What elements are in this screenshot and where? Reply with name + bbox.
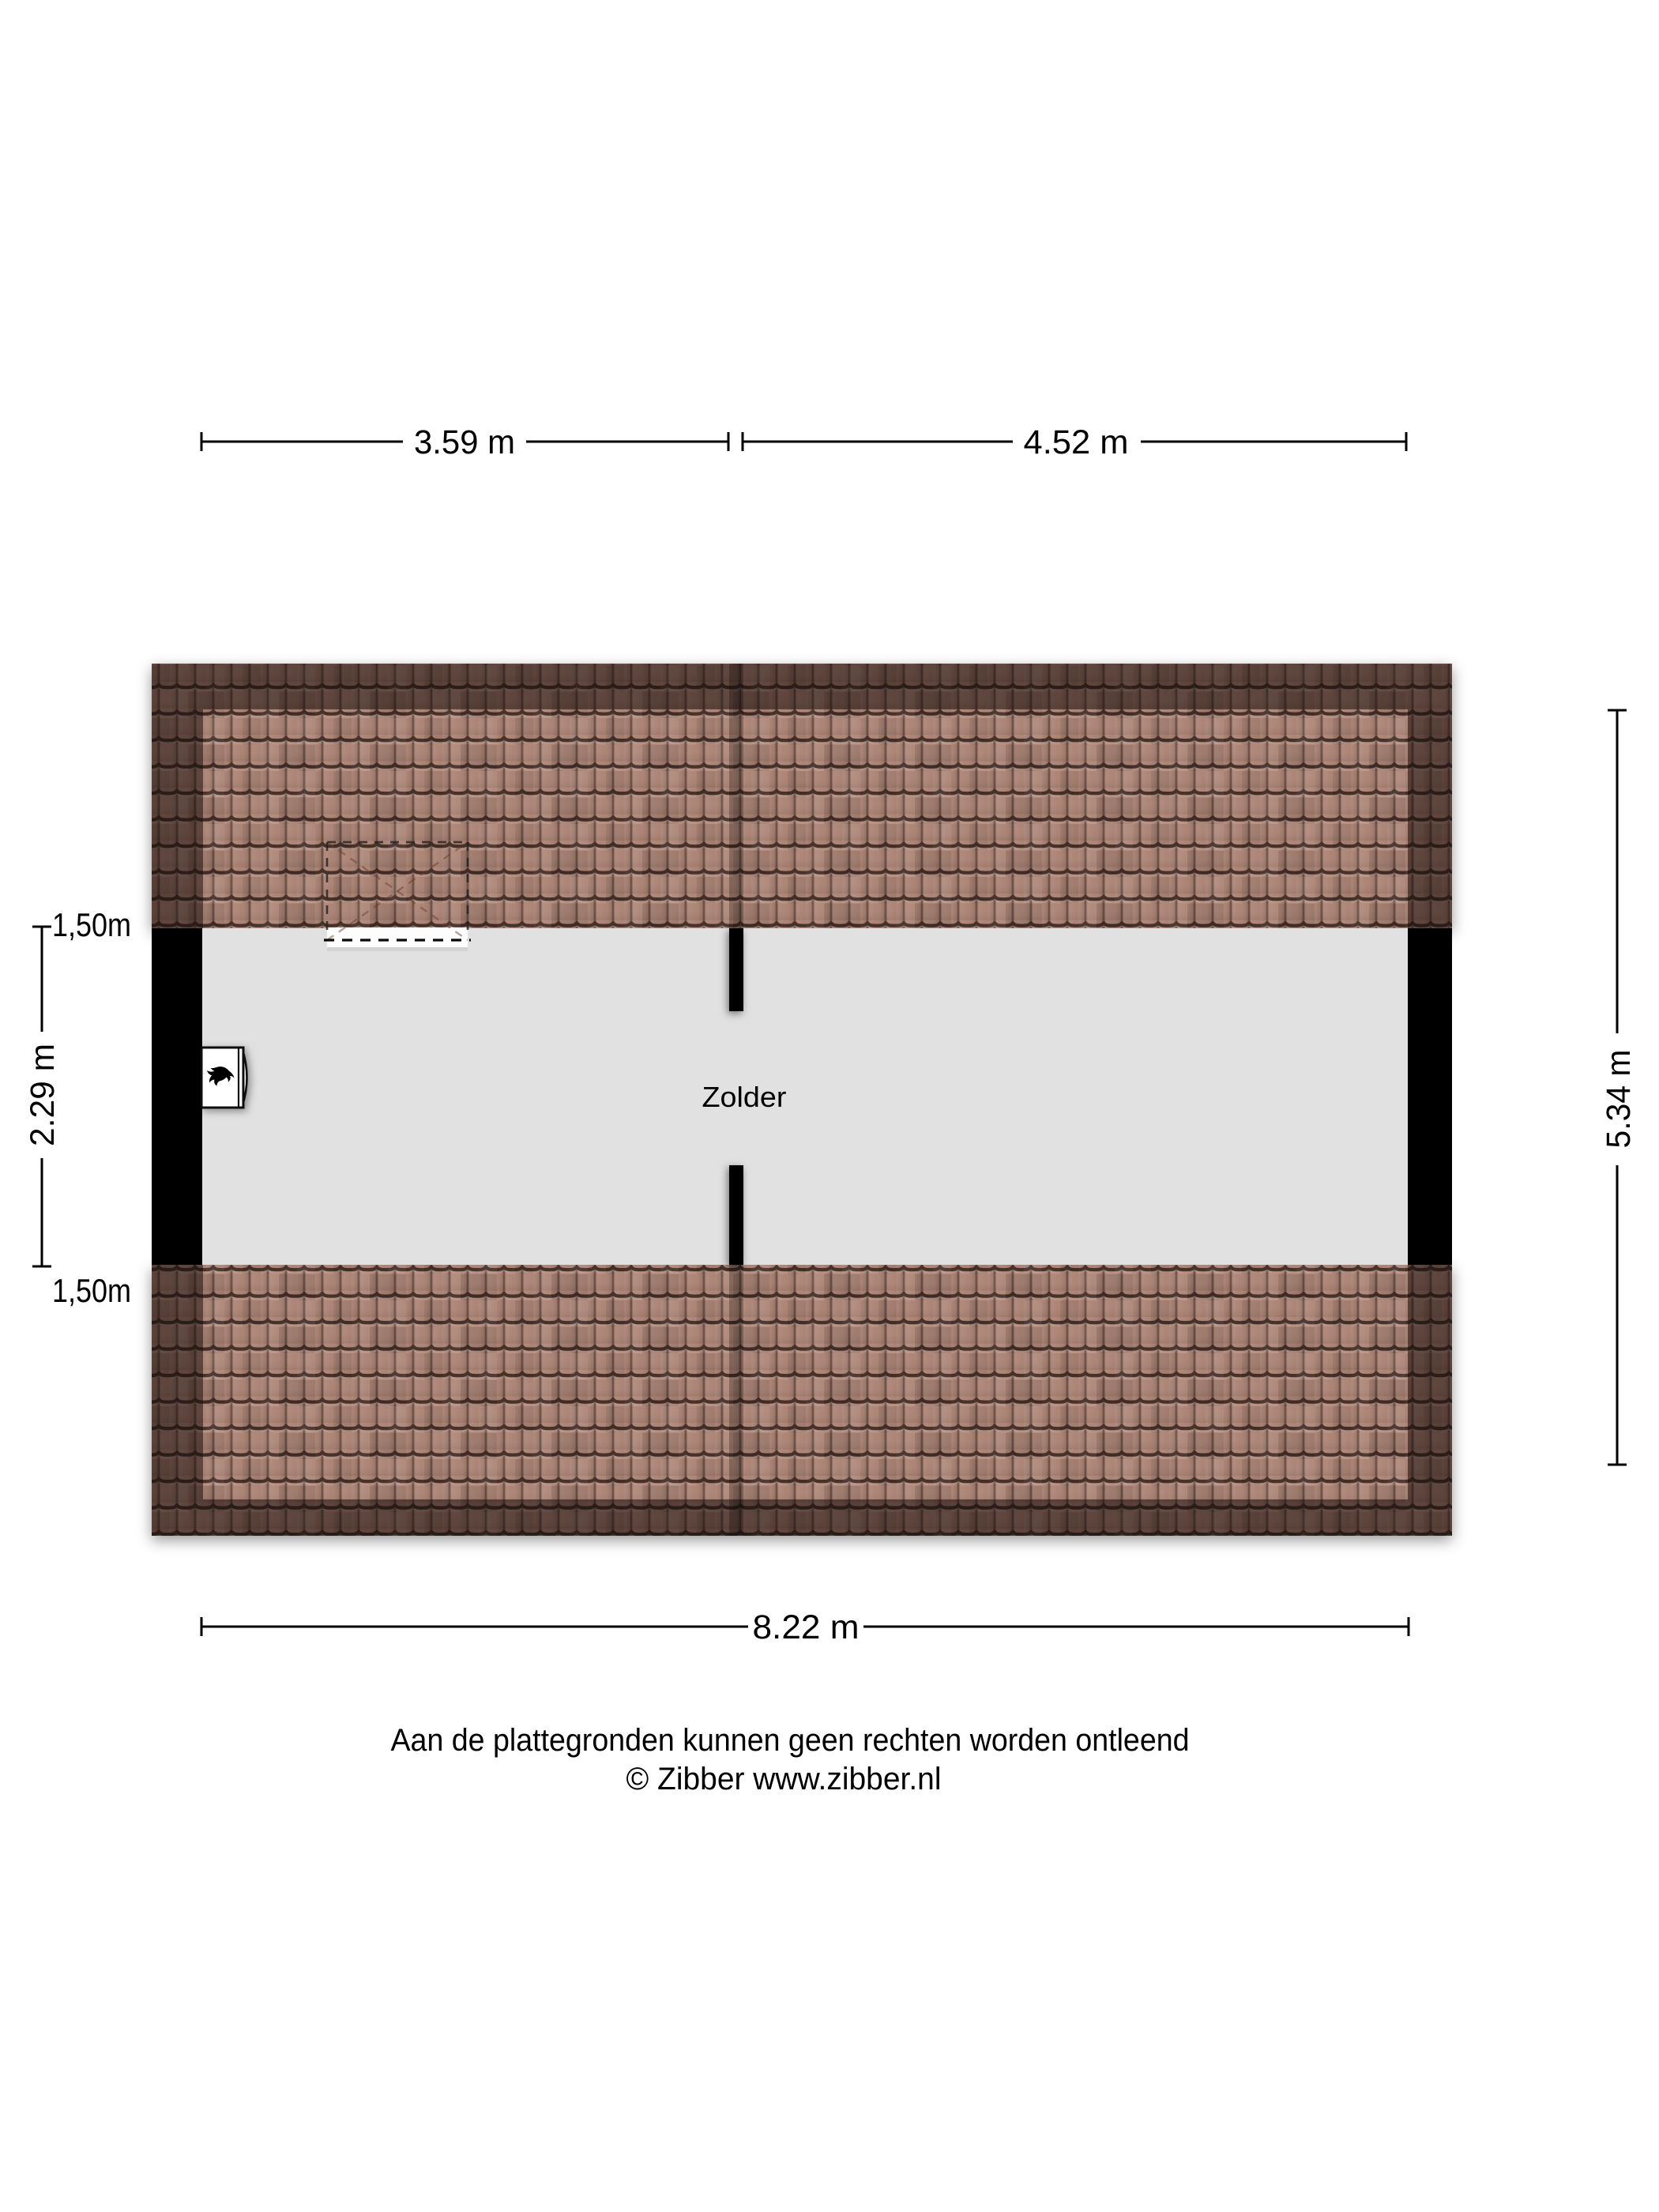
svg-text:2.29 m: 2.29 m <box>24 1044 62 1146</box>
svg-text:3.59 m: 3.59 m <box>414 423 515 461</box>
svg-text:5.34 m: 5.34 m <box>1600 1050 1638 1149</box>
svg-text:Aan de plattegronden kunnen ge: Aan de plattegronden kunnen geen rechten… <box>391 1723 1190 1758</box>
svg-text:1,50m: 1,50m <box>52 1272 131 1309</box>
svg-text:1,50m: 1,50m <box>52 906 131 943</box>
svg-text:8.22 m: 8.22 m <box>753 1608 860 1646</box>
svg-text:4.52 m: 4.52 m <box>1024 423 1129 461</box>
svg-text:Zolder: Zolder <box>702 1081 787 1113</box>
svg-text:© Zibber www.zibber.nl: © Zibber www.zibber.nl <box>626 1762 942 1796</box>
